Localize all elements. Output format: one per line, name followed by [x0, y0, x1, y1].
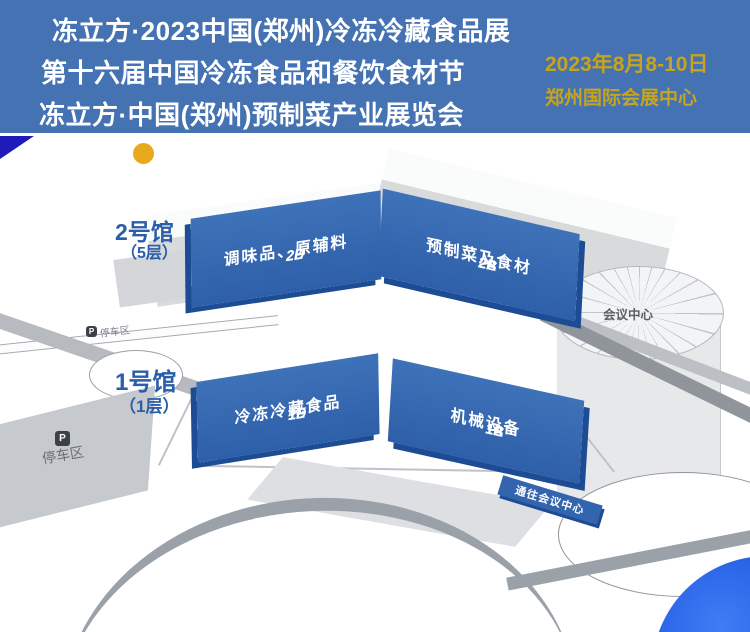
hall2-floor: （5层） [121, 246, 178, 262]
hall1-zone-box-machinery: 机械设备 1C 1B 1A [388, 358, 584, 483]
event-date: 2023年8月8-10日 [545, 54, 708, 75]
title-line-1: 冻立方·2023中国(郑州)冷冻冷藏食品展 [52, 18, 510, 44]
zone-code: 1A [485, 421, 504, 441]
zone-code: 2A [478, 255, 497, 275]
corner-triangle-decoration [0, 136, 34, 159]
parking-icon: P [86, 326, 97, 337]
title-line-3: 冻立方·中国(郑州)预制菜产业展览会 [39, 102, 464, 128]
hall1-floor: （1层） [119, 398, 179, 415]
header-banner: 冻立方·2023中国(郑州)冷冻冷藏食品展 第十六届中国冷冻食品和餐饮食材节 冻… [0, 0, 750, 133]
conference-center-label: 会议中心 [603, 304, 653, 323]
gold-dot-decoration [133, 143, 154, 164]
zone-code: 2D [286, 246, 304, 265]
parking-icon: P [55, 431, 70, 446]
event-venue: 郑州国际会展中心 [545, 89, 697, 108]
zone-code: 1D [288, 405, 307, 424]
hall1-zone-box-frozen-food: 冷冻冷藏食品 1F 1E 1D [196, 353, 379, 463]
hall2-name: 2号馆 [115, 221, 174, 244]
hall1-name: 1号馆 [115, 371, 176, 395]
title-line-2: 第十六届中国冷冻食品和餐饮食材节 [41, 60, 465, 86]
exhibition-floor-plan: 冻立方·2023中国(郑州)冷冻冷藏食品展 第十六届中国冷冻食品和餐饮食材节 冻… [0, 0, 750, 632]
